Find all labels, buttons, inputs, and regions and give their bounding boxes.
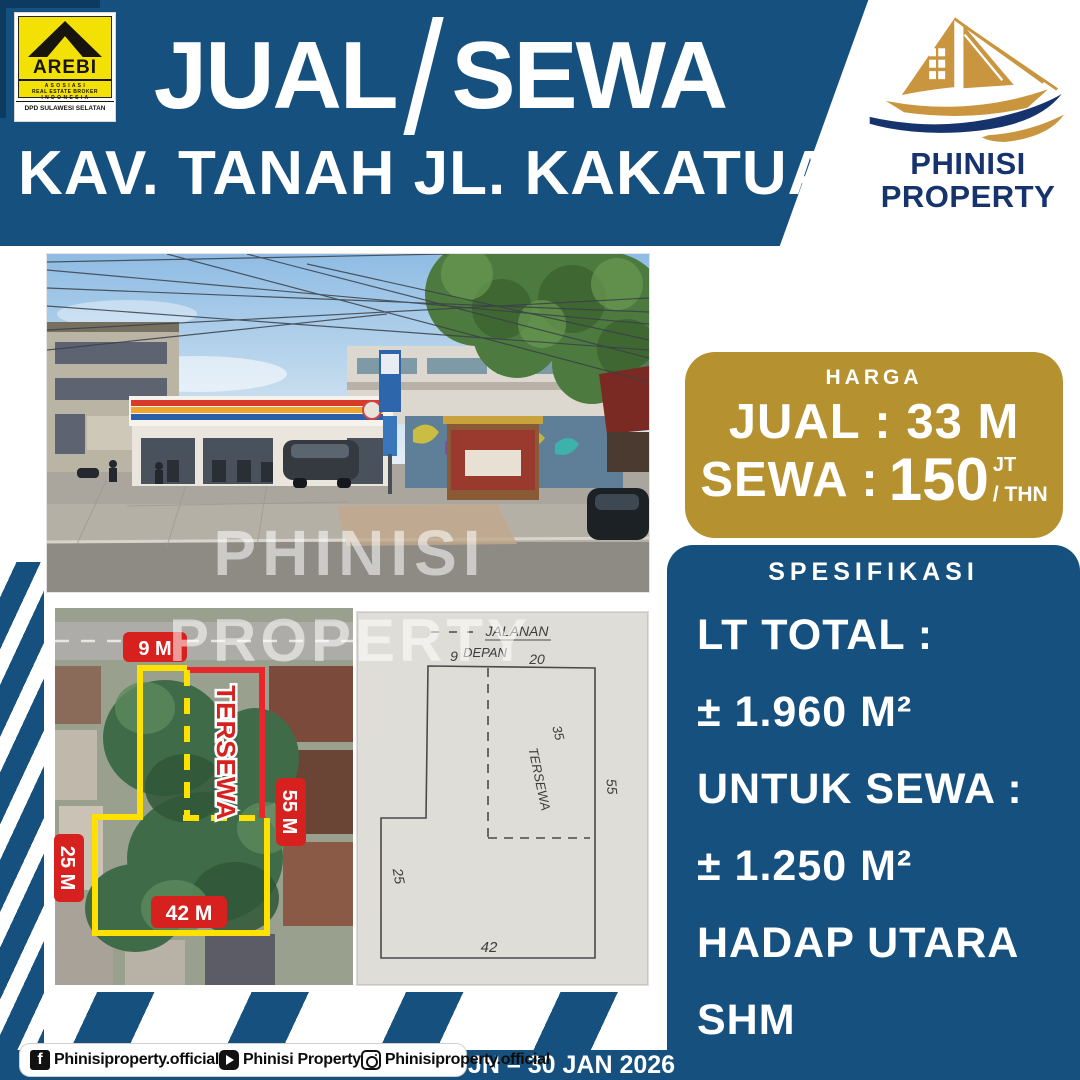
- instagram-icon: [361, 1050, 381, 1070]
- specification-title: SPESIFIKASI: [667, 558, 1080, 587]
- label-tersewa: TERSEWA: [211, 685, 241, 821]
- rent-price-value: 150: [889, 452, 989, 508]
- facebook-icon: f: [30, 1050, 50, 1070]
- rent-price-period: / THN: [993, 483, 1048, 507]
- youtube-icon: [219, 1050, 239, 1070]
- specification-lines: LT TOTAL : ± 1.960 M² UNTUK SEWA : ± 1.2…: [697, 597, 1067, 1059]
- sketch-dim-20: 20: [528, 651, 545, 667]
- brand-name-line1: PHINISI: [852, 147, 1080, 180]
- arebi-logo: AREBI A S O S I A S I REAL ESTATE BROKER…: [14, 12, 116, 122]
- instagram-handle: Phinisiproperty.official: [385, 1051, 550, 1069]
- spec-certificate: SHM: [697, 982, 1067, 1059]
- spec-lt-total-value: ± 1.960 M²: [697, 674, 1067, 751]
- phinisi-property-logo: PHINISI PROPERTY: [852, 14, 1080, 224]
- sketch-dim-55: 55: [603, 778, 620, 795]
- instagram-link[interactable]: Phinisiproperty.official: [361, 1050, 550, 1070]
- svg-text:9 M: 9 M: [138, 638, 171, 660]
- phinisi-ship-icon: [852, 14, 1080, 142]
- rent-price-unit: JT: [993, 454, 1016, 477]
- facebook-handle: Phinisiproperty.official: [54, 1051, 219, 1069]
- label-front-width: 9 M: [123, 632, 187, 662]
- brand-name-line2: PROPERTY: [852, 180, 1080, 213]
- sketch-dim-42: 42: [481, 939, 498, 956]
- specification-card: SPESIFIKASI LT TOTAL : ± 1.960 M² UNTUK …: [667, 545, 1080, 1080]
- sketch-dim-9: 9: [450, 648, 458, 664]
- street-view-photo: [47, 254, 649, 592]
- arebi-association-lines: A S O S I A S I REAL ESTATE BROKER I N D…: [21, 83, 109, 101]
- header-accent-top: [0, 0, 100, 8]
- spec-lt-total: LT TOTAL :: [697, 597, 1067, 674]
- price-card-title: HARGA: [685, 366, 1063, 390]
- rent-price-prefix: SEWA :: [700, 452, 878, 508]
- youtube-link[interactable]: Phinisi Property: [219, 1050, 361, 1070]
- youtube-handle: Phinisi Property: [243, 1051, 361, 1069]
- header-accent-left: [0, 0, 6, 118]
- satellite-plan-image: 9 M TERSEWA 55 M 25 M 42 M: [55, 608, 353, 985]
- hand-drawn-plan: JALANAN DEPAN 9 20 35 TERSEWA 55 25 42: [357, 612, 648, 985]
- title-slash-divider: [404, 17, 444, 135]
- label-right-depth: 55 M: [276, 778, 306, 846]
- label-bottom-width: 42 M: [151, 896, 227, 928]
- sketch-dim-25: 25: [390, 866, 409, 885]
- page-title: JUAL SEWA: [150, 16, 730, 136]
- arebi-roof-icon: [28, 21, 102, 57]
- arebi-region: DPD SULAWESI SELATAN: [16, 101, 114, 112]
- sketch-street-label: JALANAN: [484, 623, 549, 639]
- facebook-link[interactable]: f Phinisiproperty.official: [30, 1050, 219, 1070]
- spec-untuk-sewa-value: ± 1.250 M²: [697, 828, 1067, 905]
- svg-text:25 M: 25 M: [56, 846, 78, 890]
- label-left-depth: 25 M: [54, 834, 84, 902]
- svg-text:42 M: 42 M: [166, 902, 213, 925]
- sale-price: JUAL : 33 M: [685, 394, 1063, 450]
- sketch-front-label: DEPAN: [463, 645, 507, 660]
- title-jual: JUAL: [154, 21, 397, 131]
- title-sewa: SEWA: [451, 21, 726, 131]
- arebi-name: AREBI: [19, 57, 111, 81]
- social-links-pill: f Phinisiproperty.official Phinisi Prope…: [20, 1044, 466, 1076]
- property-subtitle: KAV. TANAH JL. KAKATUA: [18, 138, 780, 218]
- rent-price: SEWA : 150 JT / THN: [685, 452, 1063, 508]
- svg-text:TERSEWA: TERSEWA: [211, 685, 241, 821]
- spec-untuk-sewa: UNTUK SEWA :: [697, 751, 1067, 828]
- bottom-stripe-pattern: [0, 992, 660, 1052]
- spec-facing: HADAP UTARA: [697, 905, 1067, 982]
- svg-text:55 M: 55 M: [278, 790, 300, 834]
- price-card: HARGA JUAL : 33 M SEWA : 150 JT / THN: [685, 352, 1063, 538]
- arebi-logo-background: AREBI A S O S I A S I REAL ESTATE BROKER…: [18, 16, 112, 98]
